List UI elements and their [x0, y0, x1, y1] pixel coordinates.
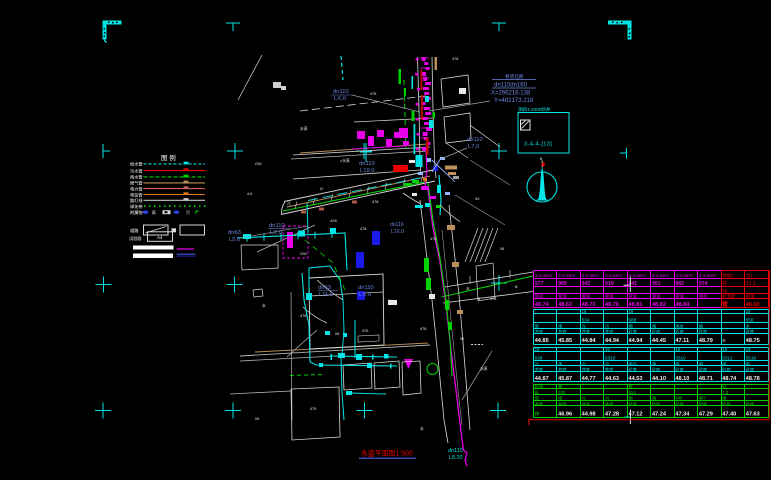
svg-text:36: 36 — [722, 289, 728, 294]
svg-text:绿化带: 绿化带 — [130, 203, 143, 210]
svg-text:4.8: 4.8 — [247, 192, 252, 196]
svg-text:污水管: 污水管 — [130, 167, 143, 174]
svg-text:5312: 5312 — [722, 355, 733, 360]
svg-text:3-4-46A\: 3-4-46A\ — [535, 273, 553, 278]
svg-text:L5.0: L5.0 — [229, 237, 240, 243]
svg-text:井底: 井底 — [558, 328, 566, 335]
svg-text:44.84: 44.84 — [582, 338, 597, 344]
svg-text:dn110: dn110 — [448, 448, 463, 454]
svg-text:4X: 4X — [475, 197, 480, 201]
svg-text:砼底: 砼底 — [746, 366, 754, 373]
svg-text:06: 06 — [500, 247, 504, 251]
svg-text:48.78: 48.78 — [746, 376, 760, 382]
svg-text:L1X.0: L1X.0 — [391, 229, 404, 235]
svg-text:44.98: 44.98 — [582, 411, 596, 417]
svg-text:44.94: 44.94 — [629, 338, 644, 344]
svg-text:475: 475 — [362, 329, 368, 333]
svg-text:3-4-46A\: 3-4-46A\ — [582, 273, 600, 278]
svg-text:图 例: 图 例 — [161, 153, 176, 162]
svg-text:终测: 终测 — [746, 293, 755, 300]
svg-text:注1: 注1 — [746, 272, 753, 279]
svg-text:井底: 井底 — [535, 366, 543, 373]
svg-text:951: 951 — [652, 281, 661, 287]
svg-text:19: 19 — [675, 347, 680, 352]
svg-text:dn110: dn110 — [269, 223, 285, 229]
svg-text:≡: ≡ — [722, 338, 725, 344]
svg-text:974: 974 — [699, 281, 708, 287]
svg-text:06: 06 — [255, 417, 259, 421]
svg-text:砼底: 砼底 — [699, 328, 707, 335]
svg-text:45.87: 45.87 — [558, 376, 572, 382]
svg-text:47.28: 47.28 — [605, 411, 619, 417]
svg-text:47.24: 47.24 — [652, 411, 667, 417]
svg-text:06: 06 — [335, 332, 339, 336]
svg-text:dn110: dn110 — [467, 137, 483, 143]
svg-text:GW: GW — [300, 252, 307, 256]
svg-text:管底: 管底 — [675, 293, 684, 300]
svg-text:47.40: 47.40 — [722, 411, 736, 417]
svg-text:19: 19 — [722, 347, 727, 352]
svg-text:47.34: 47.34 — [675, 411, 690, 417]
svg-text:47.11: 47.11 — [675, 338, 689, 344]
svg-text:永盛平面图1:500: 永盛平面图1:500 — [361, 449, 413, 458]
svg-text:478: 478 — [490, 297, 496, 301]
svg-text:3-4-4-[13]: 3-4-4-[13] — [524, 142, 552, 148]
svg-text:水表: 水表 — [300, 126, 308, 131]
svg-text:dn110: dn110 — [359, 161, 375, 167]
svg-text:478: 478 — [372, 200, 378, 204]
svg-text:管底: 管底 — [699, 293, 708, 300]
svg-text:管底: 管底 — [605, 293, 614, 300]
svg-text:962: 962 — [675, 281, 684, 287]
svg-text:5X2: 5X2 — [629, 390, 637, 395]
svg-text:L8.20: L8.20 — [449, 455, 463, 461]
svg-text:井底: 井底 — [582, 400, 590, 407]
svg-text:48.82: 48.82 — [652, 302, 666, 308]
svg-text:44.85: 44.85 — [535, 338, 549, 344]
svg-text:5310: 5310 — [605, 355, 616, 360]
svg-text:GW: GW — [255, 162, 262, 166]
svg-text:030: 030 — [558, 390, 566, 395]
svg-text:44.94: 44.94 — [605, 338, 620, 344]
svg-text:967: 967 — [699, 396, 707, 401]
svg-text:dn63: dn63 — [228, 230, 241, 236]
svg-text:3-4-46A\: 3-4-46A\ — [675, 273, 693, 278]
svg-text:雨水管: 雨水管 — [130, 174, 143, 181]
svg-text:希望北路: 希望北路 — [505, 73, 524, 80]
svg-text:478: 478 — [300, 314, 306, 318]
svg-text:48.73: 48.73 — [582, 302, 596, 308]
svg-text:48.60: 48.60 — [746, 302, 760, 308]
svg-text:534: 534 — [582, 318, 590, 323]
svg-text:井底: 井底 — [535, 400, 543, 407]
svg-text:测斜1:2000斜井: 测斜1:2000斜井 — [518, 106, 551, 113]
svg-text:雨: 雨 — [152, 210, 156, 215]
svg-text:管: 管 — [722, 300, 728, 308]
svg-text:L19.0: L19.0 — [360, 168, 375, 174]
svg-text:Ω: Ω — [320, 187, 323, 191]
svg-text:48.63: 48.63 — [558, 302, 572, 308]
svg-text:dn110dn160: dn110dn160 — [494, 83, 528, 89]
svg-text:19: 19 — [746, 347, 751, 352]
svg-text:46.96: 46.96 — [558, 411, 572, 417]
svg-text:4X8: 4X8 — [330, 219, 337, 223]
svg-text:48.71: 48.71 — [699, 376, 713, 382]
svg-text:3-4-46A\: 3-4-46A\ — [558, 273, 576, 278]
svg-text:47.63: 47.63 — [746, 411, 760, 417]
svg-text:水: 水 — [262, 303, 266, 308]
svg-text:977: 977 — [535, 281, 544, 287]
svg-text:L11.0: L11.0 — [319, 292, 333, 298]
svg-text:砼底: 砼底 — [652, 328, 660, 335]
svg-text:道路: 道路 — [130, 227, 139, 234]
svg-text:Y=482173.218: Y=482173.218 — [494, 98, 534, 104]
svg-text:砼底: 砼底 — [722, 400, 730, 407]
svg-text:19: 19 — [629, 309, 634, 314]
svg-text:942: 942 — [582, 281, 591, 287]
svg-text:965: 965 — [558, 281, 567, 287]
svg-text:砼底: 砼底 — [629, 400, 637, 407]
svg-text:550: 550 — [746, 318, 754, 323]
svg-text:L7.0: L7.0 — [468, 144, 479, 150]
svg-text:井底: 井底 — [558, 400, 566, 407]
svg-text:3-4-46A\: 3-4-46A\ — [629, 273, 647, 278]
svg-text:井底: 井底 — [605, 328, 613, 335]
svg-text:梓: 梓 — [535, 410, 540, 417]
svg-text:dn110: dn110 — [358, 285, 374, 291]
svg-text:3-4-46A\: 3-4-46A\ — [605, 273, 623, 278]
svg-text:≈水表: ≈水表 — [340, 158, 350, 163]
svg-text:588: 588 — [629, 318, 637, 323]
svg-text:井底: 井底 — [535, 328, 543, 335]
svg-text:478: 478 — [370, 92, 376, 96]
svg-text:井底: 井底 — [558, 366, 566, 373]
svg-text:dn110: dn110 — [390, 222, 404, 228]
svg-text:44.45: 44.45 — [652, 338, 666, 344]
svg-text:污: 污 — [287, 201, 291, 206]
svg-text:污: 污 — [186, 210, 190, 215]
svg-text:48.76: 48.76 — [605, 302, 619, 308]
svg-text:19: 19 — [605, 347, 610, 352]
svg-text:A4: A4 — [157, 235, 163, 240]
svg-text:44.77: 44.77 — [582, 376, 596, 382]
svg-text:48.81: 48.81 — [629, 302, 643, 308]
svg-text:45.85: 45.85 — [558, 338, 572, 344]
svg-text:48.10: 48.10 — [675, 376, 689, 382]
svg-text:井底: 井底 — [605, 400, 613, 407]
svg-text:44.63: 44.63 — [605, 376, 619, 382]
svg-text:19: 19 — [535, 347, 540, 352]
svg-text:19: 19 — [582, 309, 587, 314]
svg-text:LX.0: LX.0 — [334, 96, 346, 102]
svg-text:3-4-46A\: 3-4-46A\ — [699, 273, 717, 278]
svg-text:478: 478 — [420, 327, 426, 331]
svg-text:48.74: 48.74 — [722, 376, 737, 382]
svg-text:06: 06 — [460, 337, 464, 341]
svg-text:48.74: 48.74 — [535, 302, 550, 308]
svg-text:井: 井 — [722, 279, 727, 287]
svg-text:478: 478 — [452, 57, 458, 61]
svg-text:砼底: 砼底 — [722, 366, 730, 373]
svg-text:48.79: 48.79 — [699, 338, 713, 344]
svg-text:475: 475 — [310, 407, 316, 411]
svg-text:919: 919 — [605, 281, 614, 287]
svg-text:水: 水 — [466, 286, 470, 291]
svg-text:水表: 水表 — [480, 366, 488, 371]
svg-text:7.3: 7.3 — [722, 390, 728, 395]
svg-text:dn110: dn110 — [333, 89, 349, 95]
svg-text:管底: 管底 — [535, 293, 544, 300]
svg-text:给水管: 给水管 — [130, 161, 143, 168]
svg-text:940: 940 — [675, 396, 683, 401]
svg-text:LX.0: LX.0 — [270, 230, 282, 236]
svg-text:井底: 井底 — [582, 366, 590, 373]
svg-text:砼底: 砼底 — [629, 328, 637, 335]
svg-text:3310: 3310 — [675, 355, 686, 360]
svg-text:21.1: 21.1 — [746, 281, 756, 287]
svg-text:砼底: 砼底 — [699, 400, 707, 407]
svg-text:预留2: 预留2 — [722, 272, 734, 279]
svg-text:砼底: 砼底 — [699, 366, 707, 373]
svg-text:44.87: 44.87 — [535, 376, 549, 382]
svg-text:砼底: 砼底 — [675, 366, 683, 373]
svg-text:水: 水 — [420, 426, 424, 431]
svg-text:管底: 管底 — [582, 293, 591, 300]
svg-text:井底: 井底 — [605, 366, 613, 373]
svg-text:19: 19 — [746, 309, 751, 314]
svg-text:47.29: 47.29 — [699, 411, 713, 417]
svg-text:砼底: 砼底 — [652, 400, 660, 407]
svg-text:起测距: 起测距 — [722, 293, 736, 300]
svg-text:井底: 井底 — [582, 328, 590, 335]
svg-text:管底: 管底 — [652, 293, 661, 300]
svg-text:539: 539 — [535, 355, 543, 360]
svg-text:试验段: 试验段 — [129, 235, 142, 242]
svg-text:X=266216.138: X=266216.138 — [491, 91, 531, 97]
svg-text:44.53: 44.53 — [629, 376, 643, 382]
svg-text:附属物: 附属物 — [130, 209, 143, 216]
svg-text:dn63: dn63 — [318, 285, 331, 291]
svg-text:44.10: 44.10 — [652, 376, 666, 382]
svg-text:3-4-46A\: 3-4-46A\ — [652, 273, 670, 278]
svg-text:砼底: 砼底 — [652, 366, 660, 373]
svg-text:478: 478 — [430, 237, 436, 241]
svg-text:48.75: 48.75 — [746, 338, 760, 344]
svg-text:5518: 5518 — [746, 355, 757, 360]
svg-text:管底: 管底 — [629, 293, 638, 300]
svg-text:砼底: 砼底 — [675, 328, 683, 335]
svg-text:48.84: 48.84 — [675, 302, 690, 308]
svg-text:LX.0: LX.0 — [359, 292, 371, 298]
svg-text:管底: 管底 — [558, 293, 567, 300]
svg-text:砼底: 砼底 — [629, 366, 637, 373]
svg-text:砼底: 砼底 — [675, 400, 683, 407]
svg-text:砼底: 砼底 — [746, 328, 754, 335]
svg-text:478: 478 — [360, 227, 366, 231]
svg-text:砼底: 砼底 — [746, 400, 754, 407]
